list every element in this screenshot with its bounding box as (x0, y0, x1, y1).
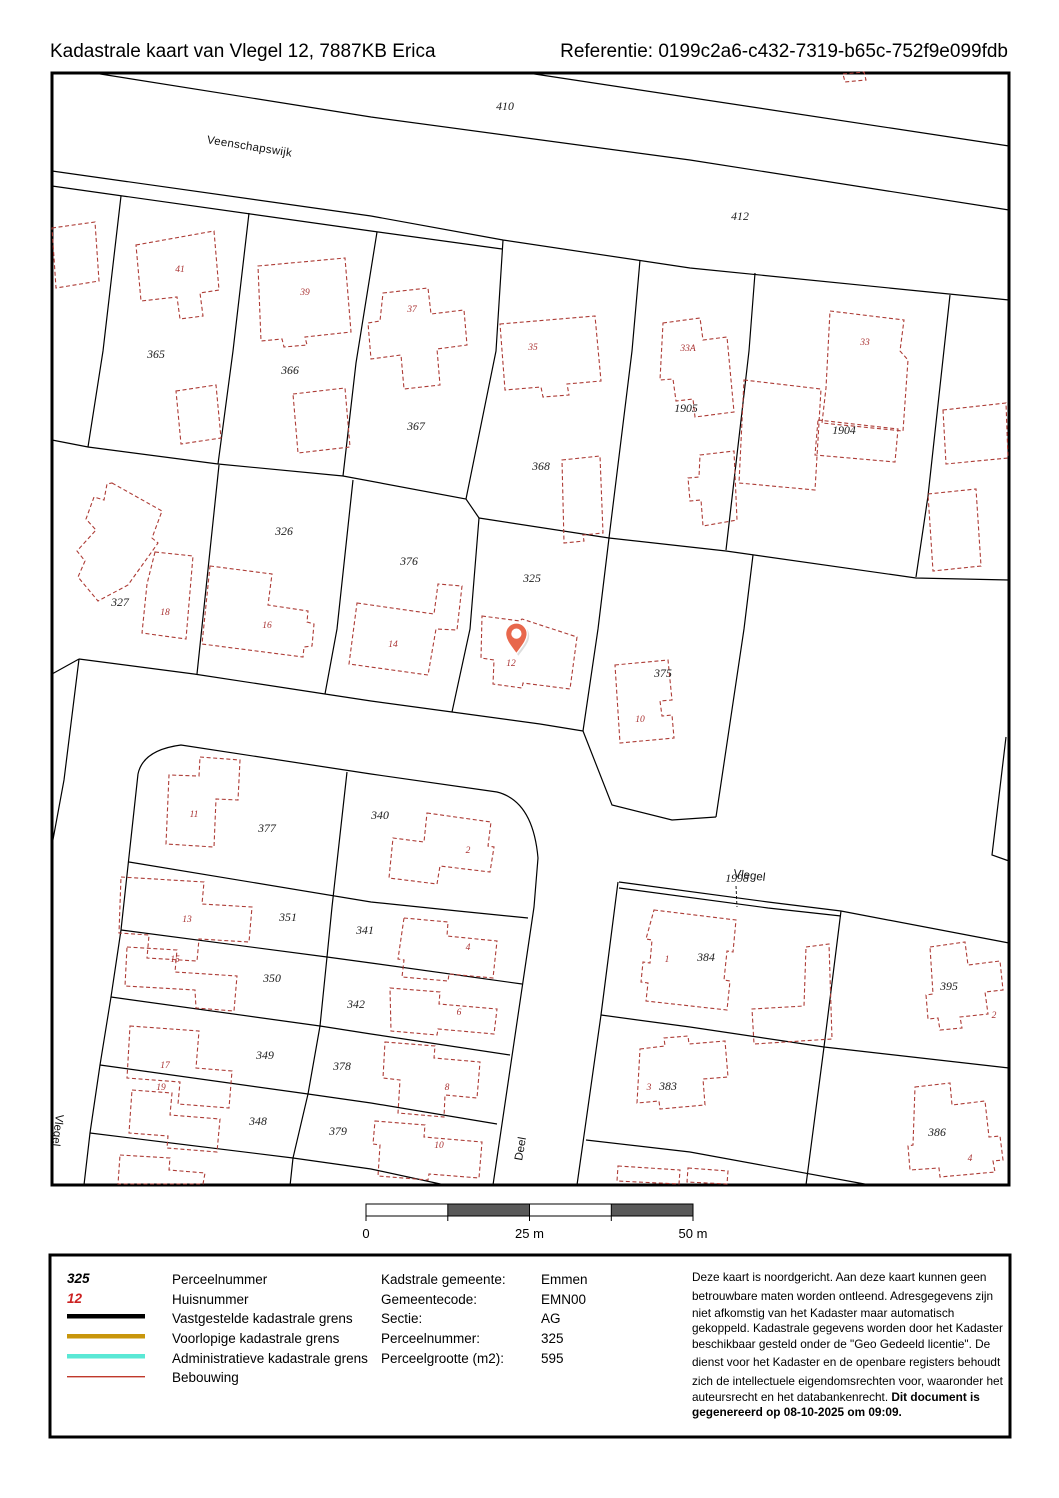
svg-text:366: 366 (280, 363, 299, 377)
svg-text:325: 325 (541, 1331, 564, 1346)
svg-text:auteursrecht en het databanken: auteursrecht en het databankenrecht. Dit… (692, 1390, 980, 1404)
svg-text:13: 13 (182, 915, 192, 925)
svg-text:595: 595 (541, 1351, 564, 1366)
svg-text:Voorlopige kadastrale grens: Voorlopige kadastrale grens (172, 1331, 340, 1346)
svg-text:350: 350 (262, 971, 281, 985)
svg-text:325: 325 (522, 571, 541, 585)
svg-text:342: 342 (346, 997, 365, 1011)
svg-text:1905: 1905 (674, 401, 698, 415)
svg-text:365: 365 (146, 347, 165, 361)
svg-text:349: 349 (255, 1048, 274, 1062)
svg-text:niet afkomstig van het Kadaste: niet afkomstig van het Kadaster maar aut… (692, 1306, 954, 1320)
svg-text:10: 10 (635, 715, 645, 725)
svg-text:Vastgestelde kadastrale grens: Vastgestelde kadastrale grens (172, 1311, 353, 1326)
svg-text:14: 14 (388, 640, 398, 650)
svg-text:Administratieve kadastrale gre: Administratieve kadastrale grens (172, 1351, 368, 1366)
svg-text:10: 10 (434, 1141, 444, 1151)
svg-text:Bebouwing: Bebouwing (172, 1370, 239, 1385)
svg-text:383: 383 (658, 1079, 677, 1093)
svg-text:4: 4 (466, 943, 471, 953)
svg-text:1: 1 (665, 955, 670, 965)
svg-text:Kadastrale kaart van Vlegel 12: Kadastrale kaart van Vlegel 12, 7887KB E… (50, 41, 436, 62)
svg-text:2: 2 (992, 1011, 997, 1021)
svg-text:326: 326 (274, 524, 293, 538)
svg-text:12: 12 (506, 659, 516, 669)
svg-text:Kadstrale gemeente:: Kadstrale gemeente: (381, 1272, 506, 1287)
svg-text:beschikbaar gesteld onder de ": beschikbaar gesteld onder de "Geo Gedeel… (692, 1337, 991, 1351)
svg-text:340: 340 (370, 808, 389, 822)
svg-text:gekoppeld. Kadastrale gegevens: gekoppeld. Kadastrale gegevens worden do… (692, 1321, 1003, 1335)
svg-text:0: 0 (362, 1226, 369, 1241)
svg-text:35: 35 (527, 343, 538, 353)
svg-text:341: 341 (355, 923, 374, 937)
svg-text:18: 18 (160, 608, 170, 618)
svg-text:Huisnummer: Huisnummer (172, 1292, 249, 1307)
svg-text:33: 33 (859, 338, 870, 348)
svg-text:8: 8 (445, 1083, 450, 1093)
svg-text:41: 41 (175, 265, 185, 275)
svg-text:3: 3 (646, 1083, 652, 1093)
svg-text:348: 348 (248, 1114, 267, 1128)
svg-text:386: 386 (927, 1125, 946, 1139)
svg-text:327: 327 (110, 595, 130, 609)
svg-text:Emmen: Emmen (541, 1272, 588, 1287)
svg-text:410: 410 (496, 99, 514, 113)
svg-text:395: 395 (939, 979, 958, 993)
svg-text:Deze kaart is noordgericht. Aa: Deze kaart is noordgericht. Aan deze kaa… (692, 1270, 986, 1284)
svg-text:betrouwbare maten worden ontle: betrouwbare maten worden ontleend. Adres… (692, 1289, 993, 1303)
svg-text:Referentie: 0199c2a6-c432-7319: Referentie: 0199c2a6-c432-7319-b65c-752f… (560, 41, 1008, 62)
svg-text:351: 351 (278, 910, 297, 924)
svg-text:dienst voor het Kadaster en de: dienst voor het Kadaster en de openbare … (692, 1355, 1001, 1369)
svg-text:Perceelgrootte (m2):: Perceelgrootte (m2): (381, 1351, 504, 1366)
svg-text:zich de intellectuele eigendom: zich de intellectuele eigendomsrechten v… (692, 1374, 1004, 1388)
svg-text:4: 4 (968, 1154, 973, 1164)
svg-text:12: 12 (67, 1291, 83, 1306)
svg-text:Perceelnummer: Perceelnummer (172, 1272, 268, 1287)
svg-text:AG: AG (541, 1311, 561, 1326)
svg-text:379: 379 (328, 1124, 347, 1138)
svg-text:25 m: 25 m (515, 1226, 544, 1241)
svg-text:412: 412 (731, 209, 749, 223)
svg-text:376: 376 (399, 554, 418, 568)
svg-text:50 m: 50 m (679, 1226, 708, 1241)
svg-text:Gemeentecode:: Gemeentecode: (381, 1292, 477, 1307)
svg-text:368: 368 (531, 459, 550, 473)
svg-text:Perceelnummer:: Perceelnummer: (381, 1331, 480, 1346)
svg-text:33A: 33A (679, 344, 696, 354)
svg-text:17: 17 (160, 1061, 171, 1071)
svg-text:11: 11 (190, 810, 199, 820)
svg-text:377: 377 (257, 821, 277, 835)
svg-text:39: 39 (299, 288, 310, 298)
svg-text:325: 325 (67, 1271, 90, 1286)
svg-text:6: 6 (457, 1008, 462, 1018)
svg-text:16: 16 (262, 621, 272, 631)
svg-text:gegenereerd op 08-10-2025 om 0: gegenereerd op 08-10-2025 om 09:09. (692, 1405, 902, 1419)
svg-text:19: 19 (156, 1083, 166, 1093)
svg-text:EMN00: EMN00 (541, 1292, 586, 1307)
svg-text:15: 15 (170, 955, 180, 965)
svg-text:384: 384 (696, 950, 715, 964)
svg-text:367: 367 (406, 419, 426, 433)
svg-text:2: 2 (466, 846, 471, 856)
svg-text:1904: 1904 (832, 423, 856, 437)
svg-text:375: 375 (653, 666, 672, 680)
svg-text:378: 378 (332, 1059, 351, 1073)
svg-text:37: 37 (406, 305, 418, 315)
svg-text:Sectie:: Sectie: (381, 1311, 422, 1326)
